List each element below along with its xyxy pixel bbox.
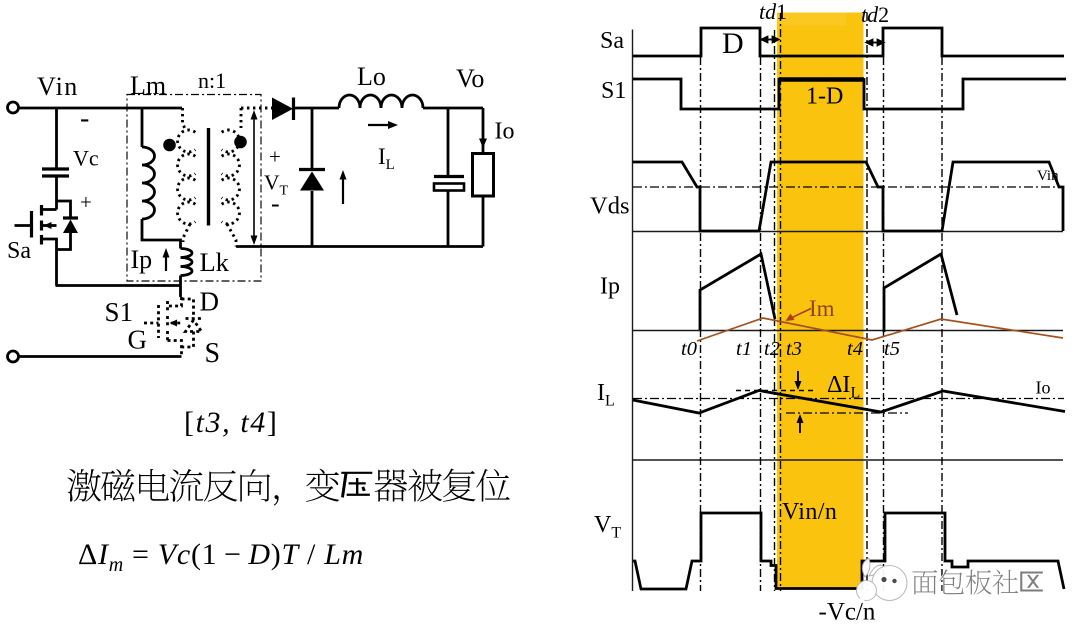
svg-text:Io: Io	[495, 119, 515, 145]
svg-text:t1: t1	[736, 338, 752, 360]
svg-text:Vin: Vin	[37, 72, 79, 101]
svg-text:Sa: Sa	[600, 28, 624, 54]
svg-text:n:1: n:1	[198, 68, 226, 93]
svg-text:S1: S1	[601, 78, 626, 104]
svg-text:D: D	[722, 27, 744, 60]
svg-text:+: +	[269, 145, 281, 169]
svg-text:S: S	[205, 338, 221, 369]
svg-text:t5: t5	[884, 338, 900, 360]
svg-text:td1: td1	[759, 0, 787, 24]
svg-text:Vc: Vc	[73, 146, 99, 171]
svg-text:1-D: 1-D	[806, 84, 843, 110]
svg-text:Io: Io	[1036, 378, 1051, 398]
svg-text:Vin: Vin	[1037, 168, 1059, 184]
svg-text:t3: t3	[786, 338, 802, 360]
svg-text:+: +	[80, 190, 92, 214]
svg-text:Lk: Lk	[200, 247, 230, 277]
svg-text:Vds: Vds	[590, 193, 629, 220]
svg-text:[t3, t4]: [t3, t4]	[184, 406, 278, 439]
svg-text:-: -	[271, 189, 280, 218]
svg-text:Vo: Vo	[456, 64, 484, 93]
svg-text:t4: t4	[847, 338, 863, 360]
svg-text:Lm: Lm	[130, 71, 166, 100]
svg-text:S1: S1	[105, 297, 134, 327]
svg-text:Ip: Ip	[131, 245, 153, 274]
svg-text:G: G	[128, 325, 148, 355]
svg-text:D: D	[200, 287, 220, 317]
svg-text:Sa: Sa	[7, 238, 31, 264]
svg-text:t2: t2	[764, 338, 780, 360]
svg-text:-Vc/n: -Vc/n	[819, 599, 876, 626]
svg-text:Im: Im	[809, 296, 835, 321]
svg-text:td2: td2	[861, 2, 889, 27]
svg-text:Lo: Lo	[357, 62, 386, 91]
svg-text:Ip: Ip	[600, 274, 620, 300]
svg-text:t0: t0	[681, 338, 697, 360]
svg-text:-: -	[80, 103, 89, 134]
svg-text:Vin/n: Vin/n	[782, 499, 837, 525]
